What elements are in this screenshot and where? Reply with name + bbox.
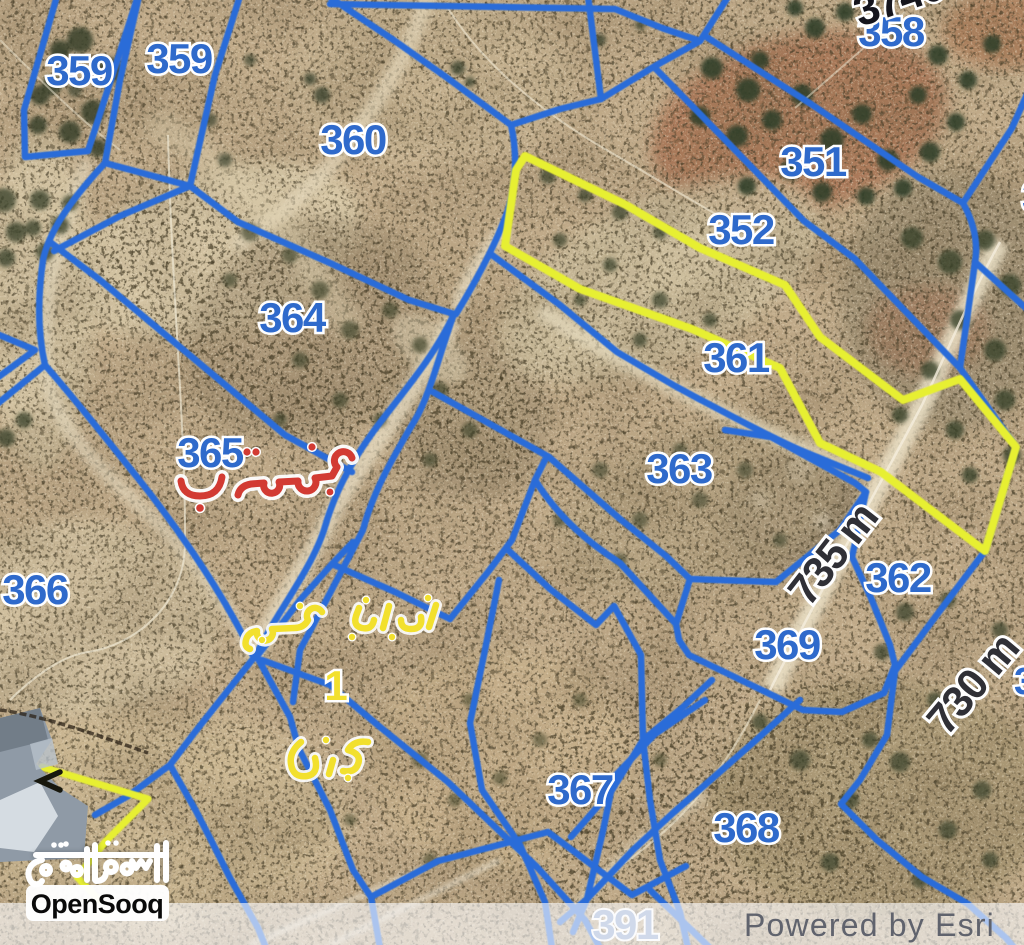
svg-text:361: 361	[703, 334, 770, 381]
svg-text:359: 359	[46, 47, 112, 94]
svg-text:360: 360	[320, 116, 386, 163]
svg-text:368: 368	[713, 804, 780, 851]
svg-text:1: 1	[324, 662, 347, 709]
svg-text:352: 352	[708, 206, 774, 253]
svg-text:364: 364	[259, 294, 327, 341]
svg-text:365: 365	[177, 429, 244, 476]
svg-text:367: 367	[547, 766, 613, 813]
svg-text:369: 369	[754, 621, 820, 668]
svg-text:359: 359	[146, 35, 212, 82]
svg-text:Powered by Esri: Powered by Esri	[744, 907, 995, 943]
svg-text:351: 351	[780, 138, 847, 185]
svg-text:363: 363	[646, 445, 712, 492]
svg-text:366: 366	[2, 566, 68, 613]
svg-text:362: 362	[865, 554, 931, 601]
svg-text:OpenSooq: OpenSooq	[31, 889, 164, 919]
